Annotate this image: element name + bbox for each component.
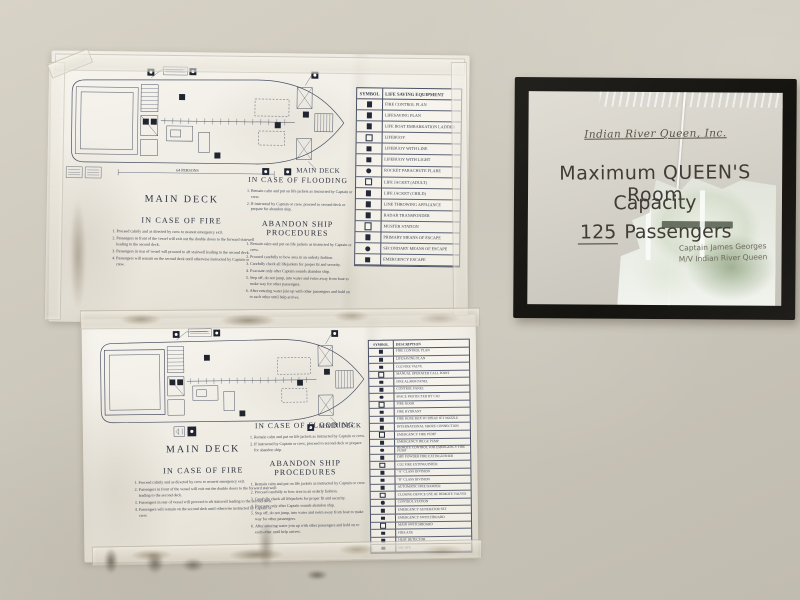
legend-rows: FIRE CONTROL PLAN LIFESAVING PLAN LIFE B… — [355, 99, 461, 267]
instruction-item: Passengers in front of the vessel will e… — [116, 235, 255, 248]
legend-symbol-icon — [381, 501, 385, 505]
legend-row-label: FIRE AXE — [396, 530, 471, 534]
legend-row-label: LIFEBUOY WITH LIGHT — [382, 158, 460, 163]
legend-row-label: "A" CLASS DIVISION — [395, 470, 470, 474]
instruction-item: Passengers will remain on the second dec… — [116, 255, 255, 268]
legend-symbol-icon — [366, 124, 372, 130]
flooding-instruction-list: Remain calm and put on life jackets as i… — [242, 188, 354, 213]
legend-row-label: FIRE DOOR — [395, 402, 470, 406]
grime-mark — [104, 548, 118, 574]
legend-symbol-icon — [381, 471, 385, 475]
wall-photo: 64 PERSONS MAIN DECK SYMBOL LIFE SAVING … — [0, 0, 800, 600]
legend-symbol-icon — [381, 531, 385, 535]
legend-row-label: CONTROL PANEL — [394, 387, 469, 391]
legend-symbol-icon — [366, 168, 372, 174]
flooding-abandon-block: IN CASE OF FLOODING Remain calm and put … — [241, 175, 355, 302]
instruction-item: Proceed carefully to bow area in an orde… — [255, 488, 366, 495]
legend-row-label: LIFEBUOY WITH LINE — [382, 147, 460, 152]
legend-symbol-icon — [381, 516, 385, 520]
legend-row-label: LIFE BOAT EMBARKATION LADDER — [383, 125, 461, 130]
ship-deck-plan-drawing: 64 PERSONS MAIN DECK — [58, 63, 359, 187]
legend-symbol-icon — [380, 426, 384, 430]
legend-symbol-icon — [378, 372, 384, 378]
legend-symbol-icon — [381, 478, 385, 482]
framed-capacity-sign: Indian River Queen, Inc. Maximum QUEEN'S… — [513, 77, 797, 320]
legend-description-header: LIFE SAVING EQUIPMENT — [383, 91, 461, 97]
passenger-count: 125 — [578, 221, 618, 244]
legend-symbol-icon — [366, 157, 372, 163]
deck-heading: MAIN DECK — [108, 193, 256, 206]
grime-mark — [146, 552, 164, 574]
instruction-item: Passengers in rear of vessel will procee… — [116, 248, 255, 255]
legend-symbol-icon — [379, 365, 383, 369]
instruction-item: Evacuate only after Captain sounds aband… — [250, 268, 353, 275]
legend-symbol-icon — [364, 223, 372, 231]
legend-row-label: MUSTER STATION — [381, 224, 459, 229]
legend-symbol-icon — [379, 358, 383, 362]
legend-symbol-icon — [365, 246, 371, 252]
legend-symbol-icon — [367, 113, 373, 119]
legend-symbol-icon — [380, 493, 386, 499]
instruction-item: Remain calm and put on life jackets as i… — [251, 188, 354, 200]
legend-symbol-icon — [365, 213, 371, 219]
fire-instruction-list: Proceed calmly and as directed by crew t… — [107, 228, 255, 268]
instruction-item: Carefully check all lifejackets for prop… — [255, 495, 366, 502]
legend-symbol-icon — [380, 462, 386, 468]
legend-row-label: INTERNATIONAL SHORE CONNECTION — [395, 425, 470, 429]
legend-symbol-icon — [380, 388, 384, 392]
legend-row-label: DRY POWDER FIRE EXTINGUISHER — [395, 455, 470, 459]
flooding-instruction-list: Remain calm and put on life jackets as i… — [245, 433, 365, 453]
legend-symbol-header: SYMBOL — [369, 341, 394, 348]
legend-row-label: FIRE CONTROL PLAN — [394, 349, 469, 353]
legend-row-label: LIFE JACKET (CHILD) — [382, 191, 460, 196]
stain-mark — [70, 200, 86, 310]
tape-strip-right — [451, 62, 469, 316]
legend-description-header: DESCRIPTION — [394, 341, 469, 346]
legend-rows: FIRE CONTROL PLAN LIFESAVING PLAN CO2 FI… — [369, 348, 471, 553]
legend-row-label: "B" CLASS DIVISION — [395, 477, 470, 481]
legend-symbol-icon — [380, 523, 386, 529]
legend-symbol-icon — [380, 418, 384, 422]
legend-symbol-icon — [366, 190, 372, 196]
legend-row-label: LIFESAVING PLAN — [383, 113, 461, 118]
legend-row-label: LIFE JACKET (ADULT) — [382, 180, 460, 185]
instruction-item: If instructed by Captain or crew, procee… — [254, 440, 365, 453]
flooding-heading: IN CASE OF FLOODING — [245, 420, 365, 430]
instruction-item: If instructed by Captain or crew, procee… — [251, 201, 354, 213]
legend-row-label: EMERGENCY BILGE PUMP — [395, 440, 470, 444]
signature-vessel: M/V Indian River Queen — [679, 251, 768, 265]
fire-control-legend-table: SYMBOL DESCRIPTION FIRE CONTROL PLAN LIF… — [368, 339, 473, 554]
safety-poster-bottom: MAIN DECK SYMBOL DESCRIPTION FIRE CONTRO… — [82, 315, 479, 563]
legend-symbol-icon — [379, 402, 385, 408]
abandon-instruction-list: Remain calm and put on life jackets as i… — [241, 241, 354, 301]
legend-row-label: CO2 FIRE VALVE — [394, 364, 469, 368]
lifesaving-legend-table: SYMBOL LIFE SAVING EQUIPMENT FIRE CONTRO… — [354, 87, 462, 268]
legend-row-label: SPACE PROTECTED BY CO2 — [394, 394, 469, 398]
legend-symbol-icon — [365, 257, 371, 263]
legend-symbol-icon — [379, 350, 383, 354]
legend-symbol-header: SYMBOL — [357, 88, 383, 98]
instruction-item: Proceed calmly and as directed by crew t… — [116, 228, 255, 235]
legend-row-label: RADAR TRANSPONDER — [382, 213, 460, 218]
legend-row-label: CO2 FIRE EXTINGUISHER — [395, 462, 470, 466]
legend-symbol-icon — [380, 448, 384, 452]
legend-row: EMERGENCY ESCAPE — [355, 254, 459, 266]
legend-symbol-icon — [365, 134, 373, 142]
legend-symbol-icon — [366, 201, 372, 207]
legend-row-label: SECONDARY MEANS OF ESCAPE — [381, 247, 459, 252]
flooding-heading: IN CASE OF FLOODING — [242, 175, 354, 185]
capacity-title-line2: Capacity — [528, 191, 782, 215]
legend-row-label: FIRE CONTROL PLAN — [383, 102, 461, 107]
captain-signature: Captain James Georges M/V Indian River Q… — [679, 240, 768, 265]
instruction-item: Carefully check all lifejackets for prop… — [250, 261, 353, 268]
legend-row-label: FIRE HYDRANT — [395, 410, 470, 414]
fire-instructions-block: MAIN DECK IN CASE OF FIRE Proceed calmly… — [107, 193, 256, 270]
instruction-item: Remain calm and put on life jackets as i… — [254, 433, 365, 440]
instruction-item: Proceed carefully to bow area in an orde… — [250, 254, 353, 261]
legend-symbol-icon — [380, 380, 384, 384]
tape-strip-middle-dirty — [80, 308, 480, 330]
legend-row-label: EMERGENCY FIRE PUMP — [395, 432, 470, 436]
legend-symbol-icon — [366, 146, 372, 152]
legend-symbol-icon — [381, 509, 385, 513]
grime-mark — [258, 520, 274, 570]
legend-symbol-icon — [380, 456, 384, 460]
legend-row-label: ROCKET PARACHUTE FLARE — [382, 169, 460, 174]
instruction-item: After entering water join up with other … — [250, 288, 353, 300]
legend-row-label: EMERGENCY ESCAPE — [381, 258, 459, 263]
legend-row-label: LIFEBUOY — [383, 136, 461, 141]
legend-row-label: LIFESAVING PLAN — [394, 357, 469, 361]
instruction-item: Remain calm and put on life jackets as i… — [250, 241, 353, 253]
legend-row-label: AUTOMATIC FIRE DAMPER — [396, 485, 471, 489]
abandon-heading: ABANDON SHIP PROCEDURES — [241, 219, 353, 238]
instruction-item: Step off, do not jump, into water and sw… — [250, 275, 353, 287]
legend-row-label: CLOSING DEVICE USE OF REMOTE VALVES — [396, 493, 471, 497]
legend-row-label: MAIN SWITCHBOARD — [396, 523, 471, 527]
legend-symbol-icon — [381, 486, 385, 490]
glass-reflection-stripes — [600, 92, 783, 108]
plan-deck-label: MAIN DECK — [296, 166, 340, 175]
legend-symbol-icon — [365, 235, 371, 241]
legend-row-label: CONTROL STATION — [396, 500, 471, 504]
legend-row-label: FIRE ALARM PANEL — [394, 379, 469, 383]
legend-symbol-icon — [380, 395, 384, 399]
legend-symbol-icon — [365, 178, 373, 186]
legend-row-label: EMERGENCY GENERATOR SET — [396, 508, 471, 512]
legend-symbol-icon — [380, 441, 384, 445]
legend-symbol-icon — [367, 102, 373, 108]
instruction-item: Step off, do not jump, into water and sw… — [255, 509, 366, 522]
legend-row-label: REMOTE CONTROL FOR EMERGENCY FIRE PUMP — [395, 446, 470, 454]
legend-row-label: EMERGENCY SWITCHBOARD — [396, 515, 471, 519]
capacity-note-label: 64 PERSONS — [176, 167, 199, 172]
fire-heading: IN CASE OF FIRE — [108, 215, 256, 226]
flooding-abandon-block: IN CASE OF FLOODING Remain calm and put … — [245, 420, 366, 536]
legend-symbol-icon — [379, 432, 385, 438]
legend-row-label: LINE THROWING APPLIANCE — [382, 202, 460, 207]
grime-mark — [182, 558, 204, 572]
legend-row-label: FIRE HOSE BOX W/ SPRAY JET NOZZLE — [395, 417, 470, 421]
legend-symbol-icon — [380, 411, 384, 415]
sign-paper: Indian River Queen, Inc. Maximum QUEEN'S… — [527, 91, 782, 306]
passenger-unit: Passengers — [618, 220, 731, 243]
legend-row-label: PRIMARY MEANS OF ESCAPE — [381, 235, 459, 240]
legend-row-label: MANUAL OPERATED CALL POINT — [394, 372, 469, 376]
instruction-item: Remain calm and put on life jackets as i… — [255, 480, 366, 487]
grime-mark — [306, 570, 328, 580]
abandon-heading: ABANDON SHIP PROCEDURES — [245, 458, 365, 477]
safety-poster-top: 64 PERSONS MAIN DECK SYMBOL LIFE SAVING … — [48, 50, 469, 326]
instruction-item: Evacuate only after Captain sounds aband… — [255, 502, 366, 509]
company-name-script: Indian River Queen, Inc. — [528, 127, 782, 142]
